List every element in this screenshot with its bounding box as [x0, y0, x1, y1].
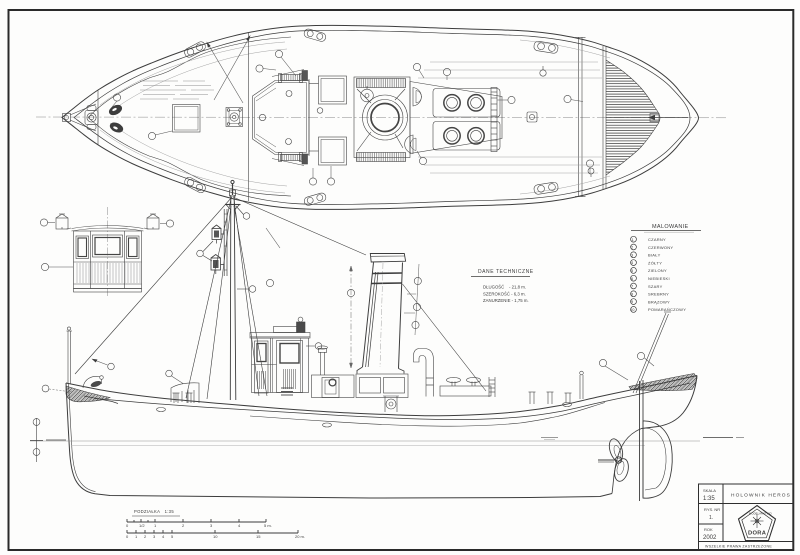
svg-text:ROK: ROK: [704, 527, 713, 532]
svg-text:ZIELONY: ZIELONY: [648, 268, 667, 273]
svg-text:SZEROKOŚĆ - 6,3 m.: SZEROKOŚĆ - 6,3 m.: [483, 292, 526, 297]
svg-text:NIEBIESKI: NIEBIESKI: [648, 276, 670, 281]
svg-text:20 m.: 20 m.: [295, 534, 305, 539]
svg-text:5 m.: 5 m.: [264, 523, 272, 528]
svg-text:HOLOWNIK HEROS: HOLOWNIK HEROS: [731, 493, 791, 499]
svg-text:ZANURZENIE - 1,75 m.: ZANURZENIE - 1,75 m.: [483, 298, 529, 303]
svg-text:BRĄZOWY: BRĄZOWY: [648, 299, 670, 304]
svg-text:PODZIAŁKA 1:35: PODZIAŁKA 1:35: [134, 509, 174, 514]
svg-text:1:35: 1:35: [703, 496, 715, 502]
svg-text:10: 10: [630, 307, 635, 312]
svg-text:SZARY: SZARY: [648, 284, 663, 289]
svg-text:MALOWANIE: MALOWANIE: [652, 224, 689, 230]
svg-text:DŁUGOŚĆ - 21,8 m.: DŁUGOŚĆ - 21,8 m.: [483, 285, 526, 290]
svg-text:CZERWONY: CZERWONY: [648, 245, 673, 250]
svg-text:15: 15: [256, 534, 261, 539]
svg-text:BIAŁY: BIAŁY: [648, 253, 661, 258]
svg-text:DORA: DORA: [748, 531, 767, 537]
svg-text:10: 10: [213, 534, 218, 539]
svg-text:CZARNY: CZARNY: [648, 237, 666, 242]
svg-text:ŻÓŁTY: ŻÓŁTY: [648, 260, 662, 265]
svg-text:SREBRNY: SREBRNY: [648, 292, 669, 297]
svg-text:POMARAŃCZOWY: POMARAŃCZOWY: [648, 307, 686, 312]
svg-text:1/2: 1/2: [139, 523, 145, 528]
svg-text:MODELARSTWO: MODELARSTWO: [749, 512, 772, 516]
svg-text:1.: 1.: [709, 515, 713, 521]
svg-text:WSZELKIE PRAWA ZASTRZEŻONE: WSZELKIE PRAWA ZASTRZEŻONE: [705, 544, 772, 549]
svg-text:SKALA: SKALA: [703, 488, 716, 493]
svg-text:RYS. NR: RYS. NR: [704, 507, 720, 512]
svg-text:2002: 2002: [703, 535, 717, 541]
svg-text:DANE TECHNICZNE: DANE TECHNICZNE: [478, 269, 534, 275]
